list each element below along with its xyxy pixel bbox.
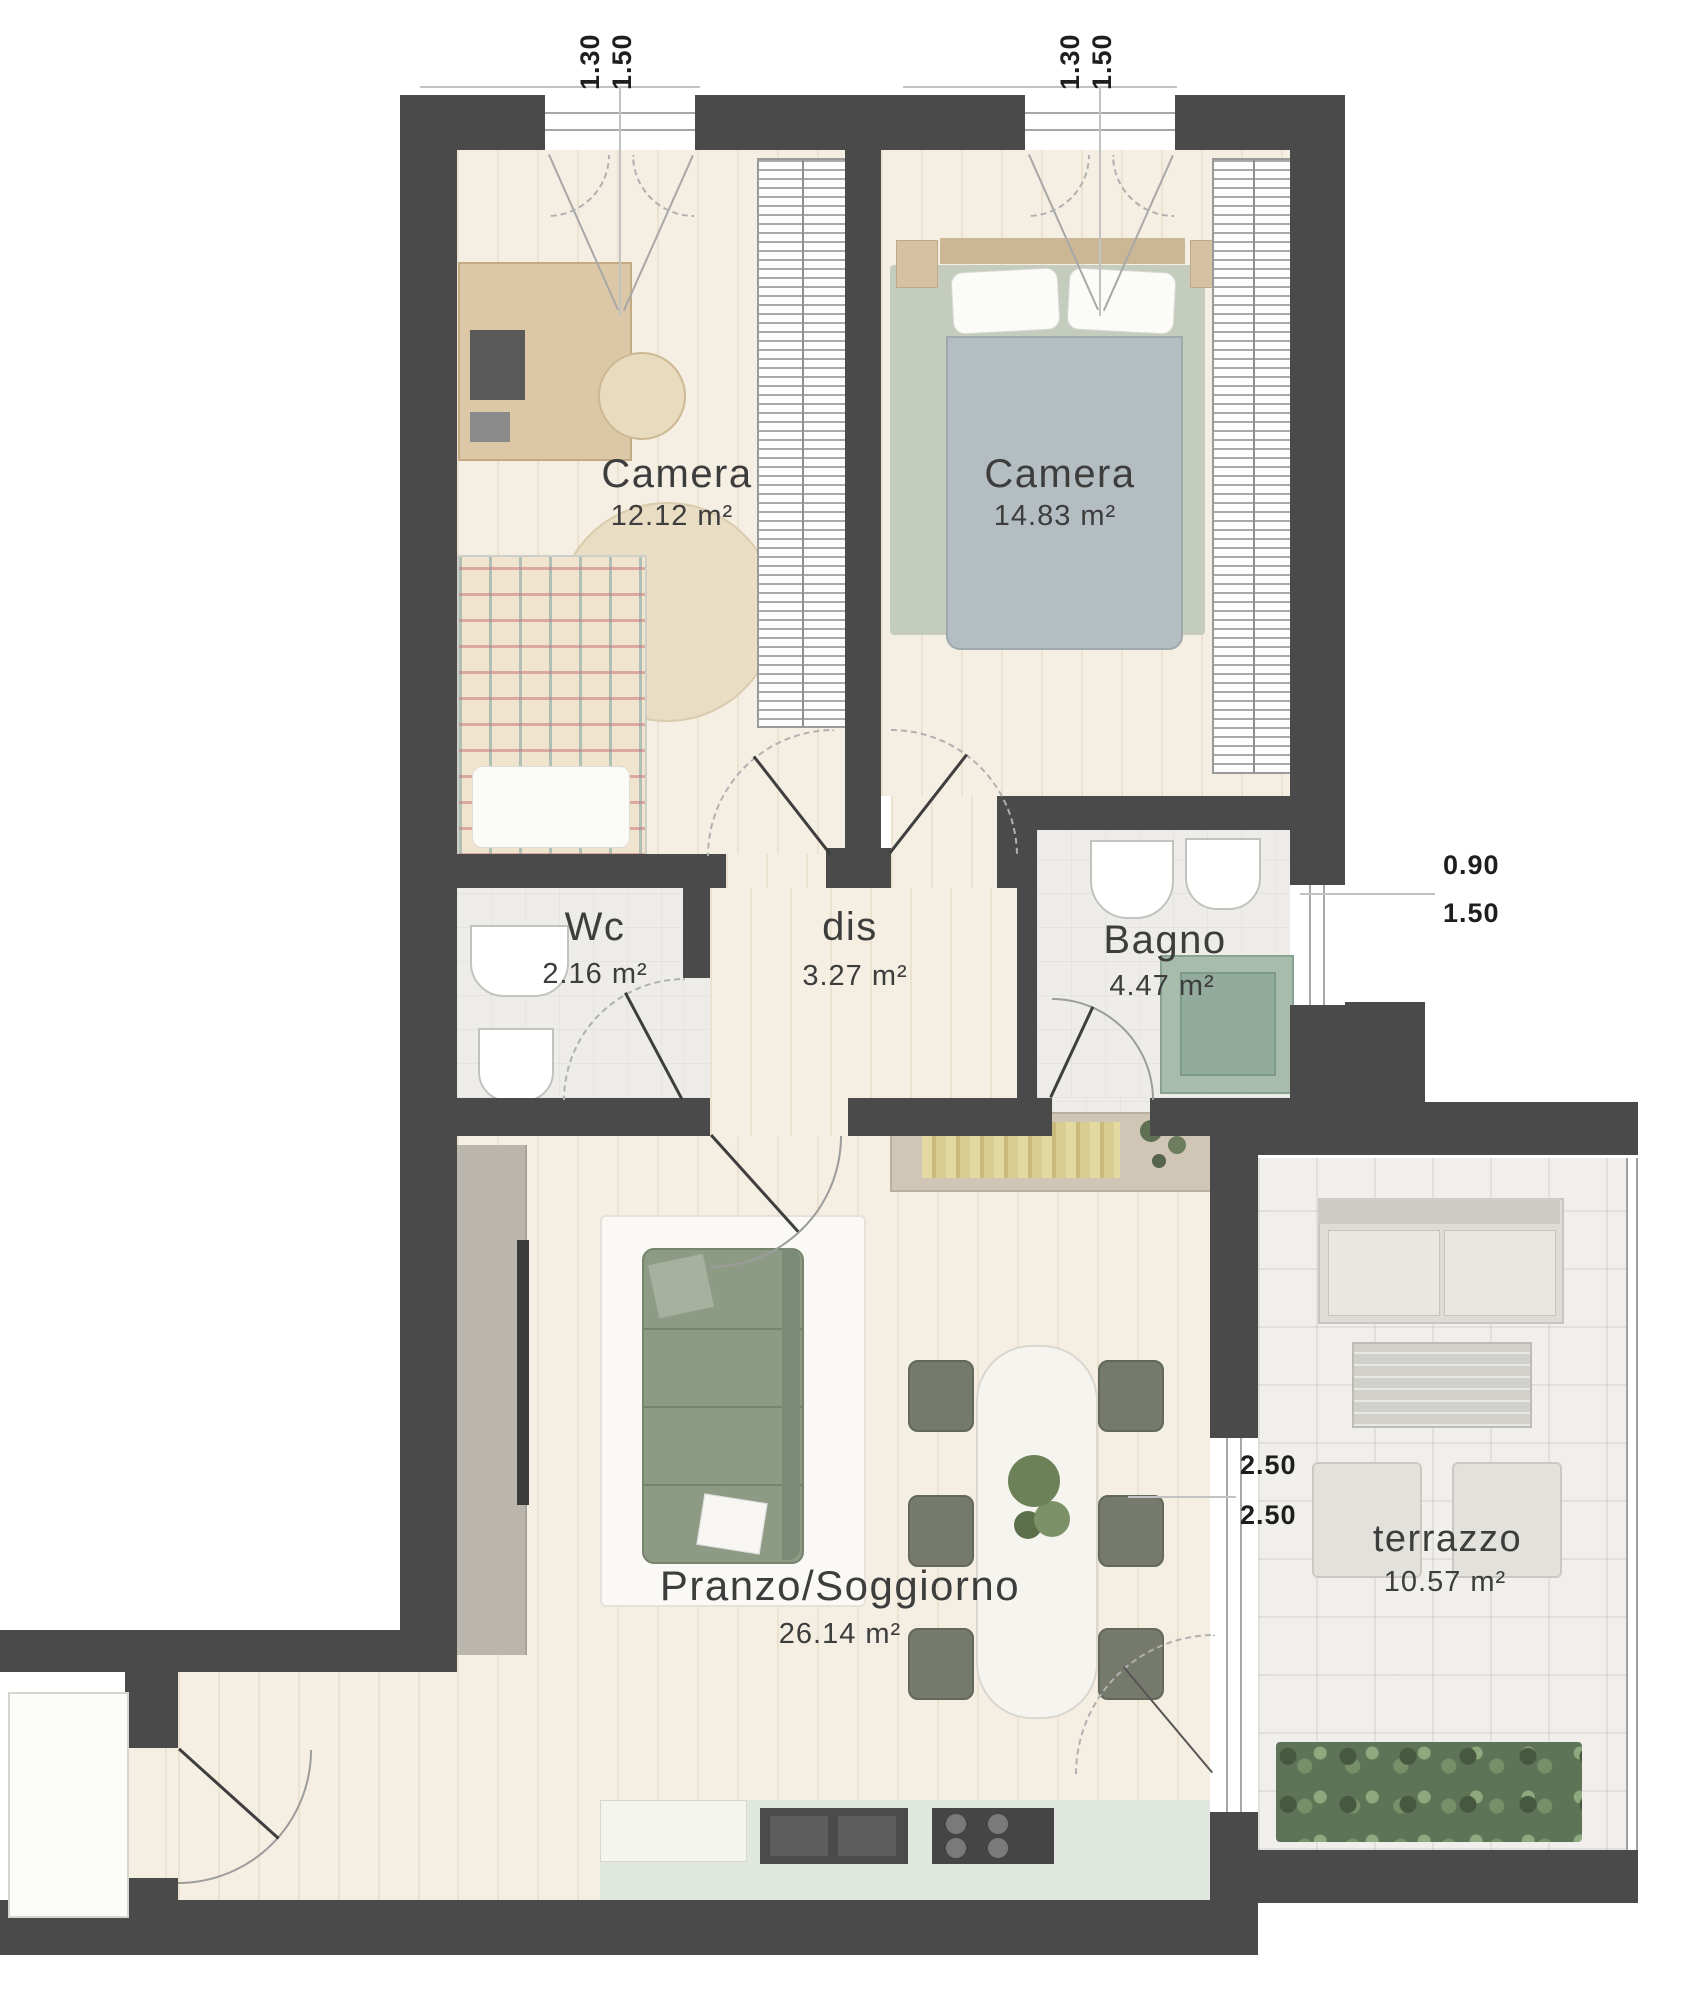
sofa-backrest [782, 1248, 800, 1560]
dimension-bagno-window-width: 0.90 [1443, 850, 1500, 881]
dimension-bagno-window-height: 1.50 [1443, 898, 1500, 929]
wall-terrazzo-bottom [1258, 1850, 1638, 1903]
dimension-terrazzo-a: 2.50 [1240, 1450, 1297, 1481]
label-dis: dis [780, 905, 920, 950]
dining-table [976, 1345, 1098, 1719]
bagno-sink [1090, 840, 1174, 919]
terrace-hedge [1276, 1742, 1582, 1842]
wall-mid-bottom [683, 1098, 710, 1136]
chair [1098, 1360, 1164, 1432]
kitchen-cabinet [600, 1800, 747, 1862]
wall-entry-top [0, 1630, 457, 1672]
label-camera1-area: 12.12 m² [547, 500, 797, 533]
entry-landing [8, 1692, 129, 1918]
kitchen-sink-bowl [838, 1816, 896, 1856]
dimension-leader [1300, 893, 1435, 895]
floor-opening-dis-door [710, 1098, 848, 1136]
wall-bottom [0, 1900, 1258, 1955]
floor-plan: 1.30 1.50 1.30 1.50 0.90 1.50 2.50 2.50 … [0, 0, 1700, 2012]
window-terrazzo-door [1214, 1438, 1254, 1812]
label-camera2-area: 14.83 m² [930, 500, 1180, 533]
terrace-sofa-cushion [1444, 1230, 1556, 1316]
sofa-pillow-bottom [696, 1493, 767, 1554]
nightstand-left [896, 240, 938, 288]
desk-pad [470, 412, 510, 442]
wall-entry-left [125, 1672, 178, 1748]
dimension-window2-width: 1.30 [1055, 10, 1086, 90]
wall-wc-dis [683, 888, 710, 978]
dimension-ext-line [903, 86, 1177, 88]
label-camera1: Camera [547, 452, 807, 497]
desk-chair [598, 352, 686, 440]
wardrobe-camera2 [1212, 158, 1294, 774]
wall-mid-bottom [457, 1098, 683, 1136]
label-wc-area: 2.16 m² [515, 958, 675, 991]
wardrobe-rail [802, 160, 804, 726]
terrace-sofa-back [1318, 1198, 1560, 1224]
chair [908, 1360, 974, 1432]
table-plant [1008, 1455, 1060, 1507]
wardrobe-camera1 [757, 158, 847, 728]
floor-opening-door1 [726, 854, 832, 888]
terrace-sofa-cushion [1328, 1230, 1440, 1316]
label-camera2: Camera [930, 452, 1190, 497]
terrace-table [1352, 1342, 1532, 1428]
dimension-leader [1128, 1496, 1236, 1498]
window-bagno [1297, 885, 1339, 1005]
chair [1098, 1495, 1164, 1567]
wall-dis-bagno [1017, 888, 1037, 1098]
bed-headboard-camera2 [940, 238, 1185, 264]
dimension-window1-height: 1.50 [607, 10, 638, 90]
label-bagno-area: 4.47 m² [1082, 970, 1242, 1003]
wc-toilet [478, 1028, 554, 1102]
stove-burner [946, 1814, 966, 1834]
wall-right-upper [1290, 150, 1345, 885]
desk-monitor [470, 330, 525, 400]
wall-terrazzo-top [1210, 1102, 1638, 1155]
dimension-window2-height: 1.50 [1087, 10, 1118, 90]
wall-bedroom-divider [845, 150, 881, 854]
dimension-leader [619, 88, 621, 316]
wardrobe-rail [1253, 160, 1255, 772]
floor-opening-wc-door [683, 978, 710, 1098]
kitchen-sink-bowl [770, 1816, 828, 1856]
wall-divider-flange [826, 848, 891, 888]
label-dis-area: 3.27 m² [775, 960, 935, 993]
wall-top [1175, 95, 1345, 150]
bagno-bidet [1185, 838, 1261, 910]
wall-top [695, 95, 1025, 150]
chair [908, 1495, 974, 1567]
dimension-window1-width: 1.30 [575, 10, 606, 90]
label-terrazzo: terrazzo [1330, 1518, 1565, 1561]
dimension-leader [1099, 88, 1101, 316]
floor-opening-entry-door [125, 1748, 178, 1878]
label-soggiorno-area: 26.14 m² [600, 1618, 1080, 1651]
wall-living-right [1210, 1136, 1258, 1438]
label-wc: Wc [520, 905, 670, 950]
pillow-left-camera2 [950, 267, 1060, 335]
sofa-pillow-top [647, 1253, 715, 1320]
dimension-ext-line [420, 86, 700, 88]
tv [517, 1240, 529, 1505]
label-terrazzo-area: 10.57 m² [1330, 1566, 1560, 1599]
wall-mid-bottom [848, 1098, 1052, 1136]
terrace-railing [1626, 1158, 1638, 1852]
label-soggiorno: Pranzo/Soggiorno [590, 1562, 1090, 1610]
pillow-camera1 [472, 766, 630, 848]
dimension-terrazzo-b: 2.50 [1240, 1500, 1297, 1531]
wall-camera1-bottom [400, 854, 726, 888]
label-bagno: Bagno [1080, 918, 1250, 963]
